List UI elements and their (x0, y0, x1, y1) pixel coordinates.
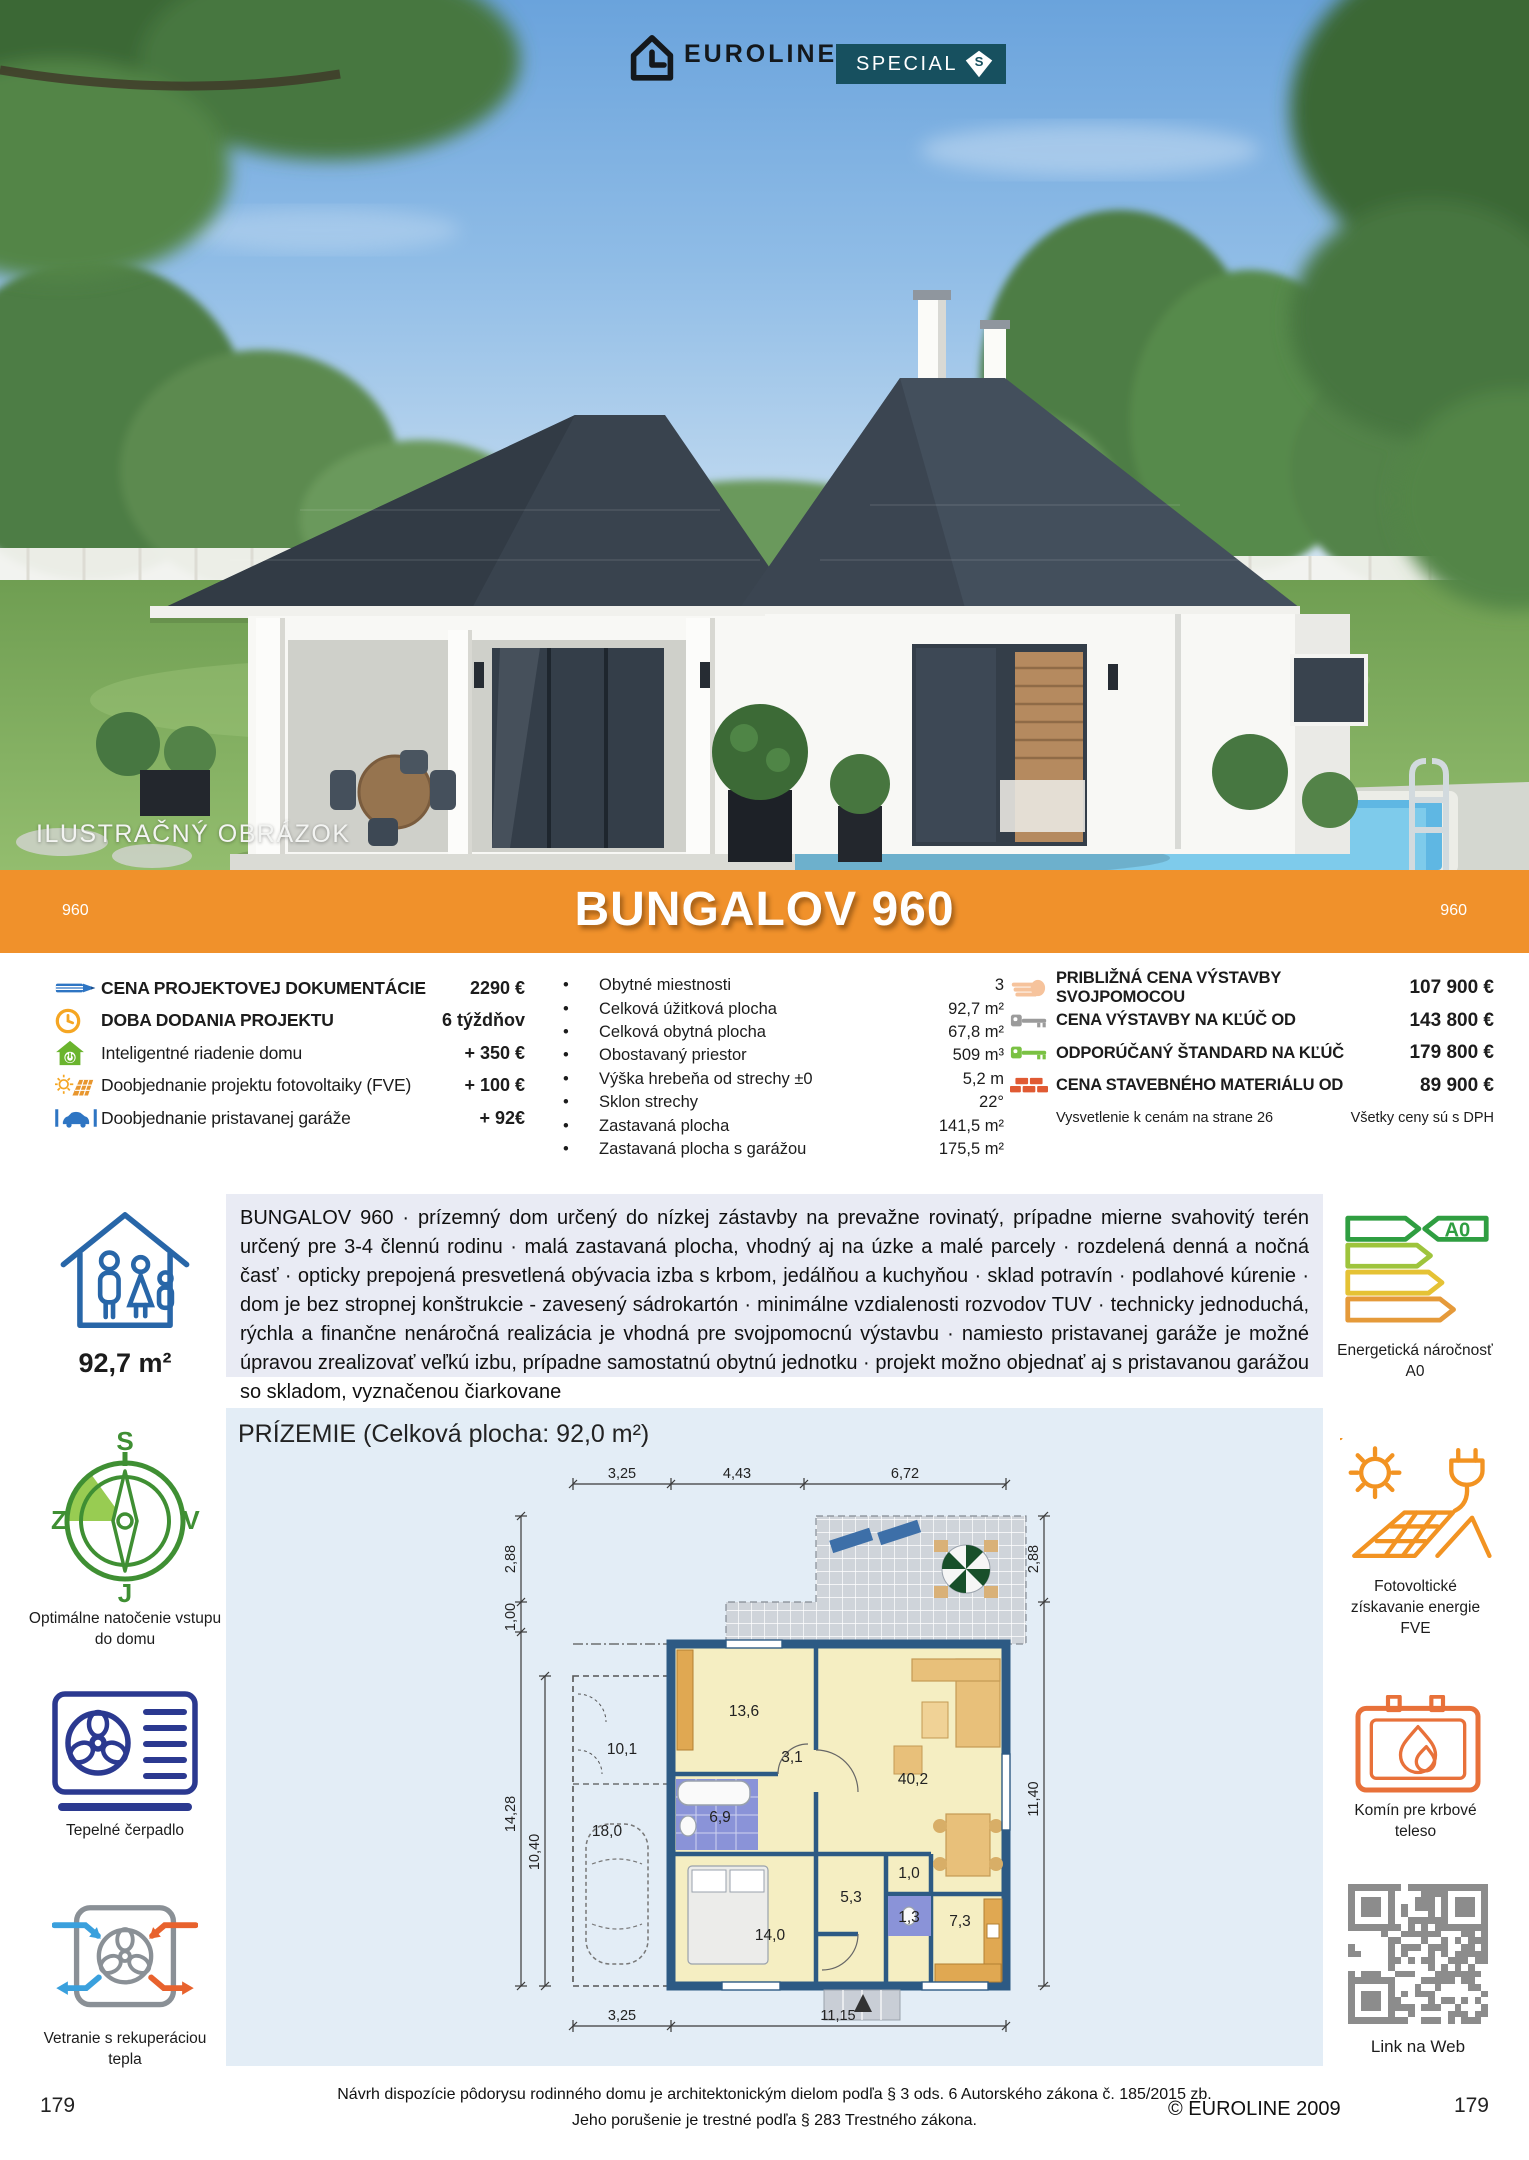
pricing-value: 2290 € (470, 978, 525, 999)
wardrobe (677, 1650, 693, 1750)
svg-text:4,43: 4,43 (723, 1466, 751, 1482)
family-house-icon (56, 1205, 194, 1337)
spec-label: Zastavaná plocha s garážou (599, 1140, 939, 1159)
garage-dashed (573, 1644, 671, 1986)
compass-label: Optimálne natočenie vstupu do domu (22, 1608, 228, 1650)
ventilation-recuperation-icon (52, 1900, 198, 2022)
spec-value: 92,7 m² (948, 1000, 1004, 1019)
special-badge-label: SPECIAL (836, 53, 964, 76)
page-title: BUNGALOV 960 (0, 882, 1529, 937)
specs-column: Obytné miestnosti3 Celková úžitková ploc… (557, 974, 1004, 1161)
bullet-icon (557, 1046, 599, 1065)
svg-text:11,15: 11,15 (820, 2008, 855, 2024)
brand-name: EUROLINE (684, 40, 837, 69)
energy-label: Energetická náročnosť A0 (1330, 1340, 1500, 1382)
pricing-label: CENA VÝSTAVBY NA KĽÚČ OD (1056, 1011, 1409, 1030)
room-label: 14,0 (755, 1927, 786, 1944)
bathtub (678, 1781, 750, 1805)
svg-text:S: S (116, 1428, 133, 1456)
compass-icon: S V J Z (50, 1428, 200, 1604)
ventilation-label: Vetranie s rekuperáciou tepla (25, 2028, 225, 2070)
fireplace-chimney-icon (1348, 1695, 1488, 1795)
bullet-icon (557, 1023, 599, 1042)
bed (688, 1866, 768, 1964)
energy-label-icon: A0 (1342, 1212, 1492, 1334)
spec-value: 5,2 m (963, 1070, 1004, 1089)
spec-value: 22° (979, 1093, 1004, 1112)
description-box: BUNGALOV 960 · prízemný dom určený do ní… (226, 1194, 1323, 1377)
qr-code (1348, 1884, 1488, 2024)
pricing-left-column: CENA PROJEKTOVEJ DOKUMENTÁCIE 2290 € DOB… (55, 972, 525, 1135)
spec-label: Výška hrebeňa od strechy ±0 (599, 1070, 963, 1089)
svg-text:6,72: 6,72 (891, 1466, 919, 1482)
pricing-row: CENA STAVEBNÉHO MATERIÁLU OD 89 900 € (1010, 1070, 1494, 1103)
pricing-row: ODPORÚČANÝ ŠTANDARD NA KĽÚČ 179 800 € (1010, 1037, 1494, 1070)
brand-header: EUROLINE SPECIAL S (620, 26, 1040, 88)
svg-text:2,88: 2,88 (503, 1545, 519, 1573)
description-text: BUNGALOV 960 · prízemný dom určený do ní… (240, 1207, 1309, 1403)
downpipe (1175, 614, 1181, 849)
room-label: 3,1 (781, 1749, 803, 1766)
footer-legal-line2: Jeho porušenie je trestné podľa § 283 Tr… (226, 2112, 1323, 2130)
room-label: 13,6 (729, 1703, 759, 1720)
svg-text:14,28: 14,28 (503, 1796, 519, 1832)
bullet-icon (557, 976, 599, 995)
illustration-label: ILUSTRAČNÝ OBRÁZOK (36, 820, 351, 849)
bullet-icon (557, 1117, 599, 1136)
spec-value: 141,5 m² (939, 1117, 1004, 1136)
room-label: 18,0 (592, 1823, 623, 1840)
spec-label: Sklon strechy (599, 1093, 979, 1112)
floor-area-value: 92,7 m² (30, 1348, 220, 1379)
spec-label: Celková obytná plocha (599, 1023, 948, 1042)
car-outline (586, 1824, 648, 1964)
photovoltaic-label: Fotovoltické získavanie energie FVE (1338, 1576, 1493, 1639)
pricing-note-left: Vysvetlenie k cenám na strane 26 (1056, 1110, 1273, 1126)
bullet-icon (557, 1000, 599, 1019)
svg-text:11,40: 11,40 (1026, 1781, 1042, 1816)
bullet-icon (557, 1093, 599, 1112)
key-green-icon (1010, 1043, 1056, 1063)
pricing-label: PRIBLIŽNÁ CENA VÝSTAVBY SVOJPOMOCOU (1056, 969, 1409, 1007)
room-label: 5,3 (840, 1889, 862, 1906)
room-label: 40,2 (898, 1771, 928, 1788)
room-label: 7,3 (949, 1913, 971, 1930)
bullet-icon (557, 1070, 599, 1089)
wall-lamp (700, 662, 710, 688)
spec-label: Zastavaná plocha (599, 1117, 939, 1136)
svg-text:1,00: 1,00 (503, 1603, 519, 1631)
title-banner: 960 BUNGALOV 960 960 (0, 870, 1529, 953)
spec-label: Celková úžitková plocha (599, 1000, 948, 1019)
svg-text:3,25: 3,25 (608, 1466, 636, 1482)
room-label: 1,0 (898, 1865, 920, 1882)
floor-plan-drawing: 10,1 18,0 13,6 6,9 3,1 14,0 5,3 1,0 1,3 … (426, 1454, 1116, 2054)
diamond-icon: S (964, 49, 994, 79)
wall-lamp (1108, 664, 1118, 690)
clock-icon (55, 1008, 101, 1034)
house-photo: EUROLINE SPECIAL S ILUSTRAČNÝ OBRÁZOK (0, 0, 1529, 870)
spec-label: Obostavaný priestor (599, 1046, 953, 1065)
floor-plan-title: PRÍZEMIE (Celková plocha: 92,0 m²) (238, 1420, 649, 1449)
pricing-row: CENA VÝSTAVBY NA KĽÚČ OD 143 800 € (1010, 1005, 1494, 1038)
pricing-label: ODPORÚČANÝ ŠTANDARD NA KĽÚČ (1056, 1044, 1409, 1063)
spec-row: Celková obytná plocha67,8 m² (557, 1021, 1004, 1044)
spec-row: Zastavaná plocha141,5 m² (557, 1114, 1004, 1137)
pricing-label: Inteligentné riadenie domu (101, 1043, 464, 1064)
umbrella-table (934, 1540, 998, 1598)
spec-row: Obostavaný priestor509 m³ (557, 1044, 1004, 1067)
pricing-value: 6 týždňov (442, 1010, 525, 1031)
floor-plan-section: PRÍZEMIE (Celková plocha: 92,0 m²) (226, 1408, 1323, 2066)
chimney-label: Komín pre krbové teleso (1338, 1800, 1493, 1842)
spec-value: 3 (995, 976, 1004, 995)
pricing-row: DOBA DODANIA PROJEKTU 6 týždňov (55, 1005, 525, 1038)
spec-row: Sklon strechy22° (557, 1091, 1004, 1114)
special-badge: SPECIAL S (836, 44, 1006, 84)
house-plan (671, 1640, 1010, 2020)
pricing-label: Doobjednanie projektu fotovoltaiky (FVE) (101, 1075, 464, 1096)
pricing-value: 89 900 € (1420, 1075, 1494, 1097)
room-label: 6,9 (709, 1809, 731, 1826)
smart-home-icon (55, 1040, 101, 1066)
pricing-value: 143 800 € (1409, 1010, 1494, 1032)
hand-icon (1010, 976, 1056, 1000)
heat-pump-label: Tepelné čerpadlo (65, 1820, 185, 1841)
pricing-row: CENA PROJEKTOVEJ DOKUMENTÁCIE 2290 € (55, 972, 525, 1005)
room-label: 1,3 (898, 1909, 920, 1926)
svg-text:J: J (118, 1578, 132, 1604)
pricing-right-column: PRIBLIŽNÁ CENA VÝSTAVBY SVOJPOMOCOU 107 … (1010, 972, 1494, 1126)
pricing-notes: Vysvetlenie k cenám na strane 26 Všetky … (1010, 1110, 1494, 1126)
bricks-icon (1010, 1075, 1056, 1097)
bullet-icon (557, 1140, 599, 1159)
pencil-icon (55, 977, 101, 999)
treeline (0, 210, 1529, 600)
photovoltaic-icon (1340, 1438, 1495, 1568)
spec-value: 67,8 m² (948, 1023, 1004, 1042)
family-figures (100, 1253, 172, 1317)
svg-text:2,88: 2,88 (1026, 1545, 1042, 1573)
svg-text:S: S (975, 54, 984, 69)
spec-row: Obytné miestnosti3 (557, 974, 1004, 997)
spec-value: 509 m³ (953, 1046, 1004, 1065)
spec-row: Zastavaná plocha s garážou175,5 m² (557, 1138, 1004, 1161)
pricing-value: 179 800 € (1409, 1042, 1494, 1064)
model-code-right: 960 (1440, 902, 1467, 920)
pricing-label: CENA STAVEBNÉHO MATERIÁLU OD (1056, 1076, 1420, 1095)
spec-label: Obytné miestnosti (599, 976, 995, 995)
pricing-row: Doobjednanie projektu fotovoltaiky (FVE)… (55, 1070, 525, 1103)
pricing-label: CENA PROJEKTOVEJ DOKUMENTÁCIE (101, 978, 470, 999)
pricing-value: 107 900 € (1409, 977, 1494, 999)
spec-value: 175,5 m² (939, 1140, 1004, 1159)
svg-text:3,25: 3,25 (608, 2008, 636, 2024)
page-number-right: 179 (1454, 2094, 1489, 2118)
room-label: 10,1 (607, 1741, 637, 1758)
energy-class-value: A0 (1444, 1219, 1470, 1241)
copyright: © EUROLINE 2009 (1168, 2098, 1341, 2121)
pricing-value: + 100 € (464, 1075, 525, 1096)
footer-legal-line1: Návrh dispozície pôdorysu rodinného domu… (226, 2086, 1323, 2104)
pricing-label: Doobjednanie pristavanej garáže (101, 1108, 479, 1129)
qr-label: Link na Web (1338, 2036, 1498, 2057)
page-number-left: 179 (40, 2094, 75, 2118)
pricing-row: Doobjednanie pristavanej garáže + 92€ (55, 1102, 525, 1135)
solar-sun-icon (55, 1073, 101, 1099)
house-photo-illustration (0, 0, 1529, 870)
spec-row: Výška hrebeňa od strechy ±05,2 m (557, 1068, 1004, 1091)
heat-pump-icon (50, 1690, 200, 1816)
pricing-row: PRIBLIŽNÁ CENA VÝSTAVBY SVOJPOMOCOU 107 … (1010, 972, 1494, 1005)
garage-car-icon (55, 1106, 101, 1130)
wall-lamp (474, 662, 484, 688)
pricing-value: + 92€ (479, 1108, 525, 1129)
svg-text:10,40: 10,40 (527, 1834, 543, 1870)
euroline-house-icon (628, 30, 676, 84)
window (1292, 656, 1366, 724)
terrace (726, 1516, 1026, 1644)
pricing-row: Inteligentné riadenie domu + 350 € (55, 1037, 525, 1070)
key-gray-icon (1010, 1011, 1056, 1031)
pricing-note-right: Všetky ceny sú s DPH (1351, 1110, 1494, 1126)
pricing-value: + 350 € (464, 1043, 525, 1064)
spec-row: Celková úžitková plocha92,7 m² (557, 997, 1004, 1020)
pricing-label: DOBA DODANIA PROJEKTU (101, 1010, 442, 1031)
